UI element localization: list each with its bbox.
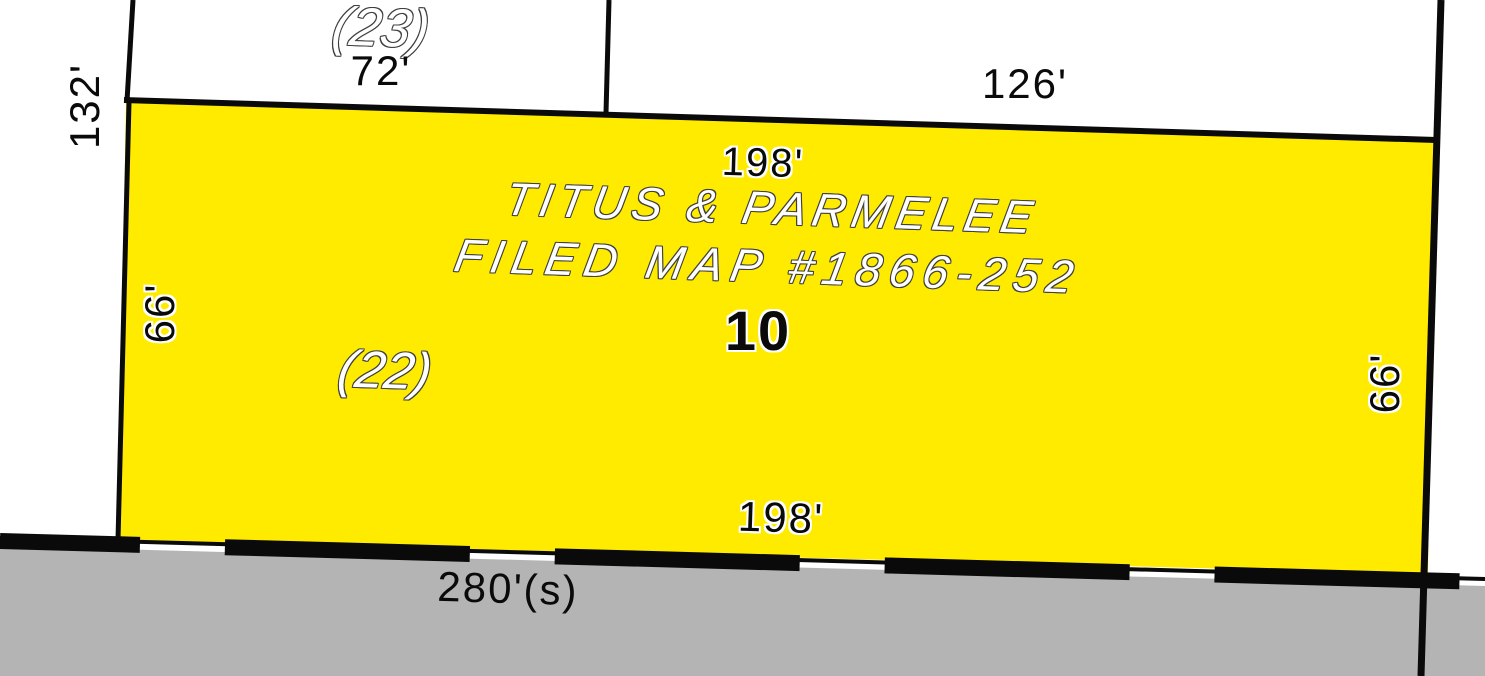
- upper-middle-boundary-line: [606, 0, 609, 113]
- dimension-198ft-bottom: 198': [737, 496, 824, 541]
- dimension-132ft: 132': [64, 63, 106, 149]
- dimension-66ft-right: 66': [1364, 353, 1406, 414]
- parcel-22-label[interactable]: (22): [334, 344, 436, 399]
- dimension-280ft-road: 280'(s): [437, 566, 579, 612]
- tax-map-canvas: 132' (23) 72' 126' 198' TITUS & PARMELEE…: [0, 0, 1485, 676]
- dimension-198ft-top: 198': [721, 142, 805, 185]
- dimension-72ft: 72': [351, 50, 412, 92]
- parcel-number[interactable]: 10: [725, 303, 791, 359]
- dimension-66ft-left: 66': [139, 283, 181, 344]
- upper-left-boundary-line: [127, 0, 133, 101]
- dimension-126ft: 126': [982, 63, 1068, 105]
